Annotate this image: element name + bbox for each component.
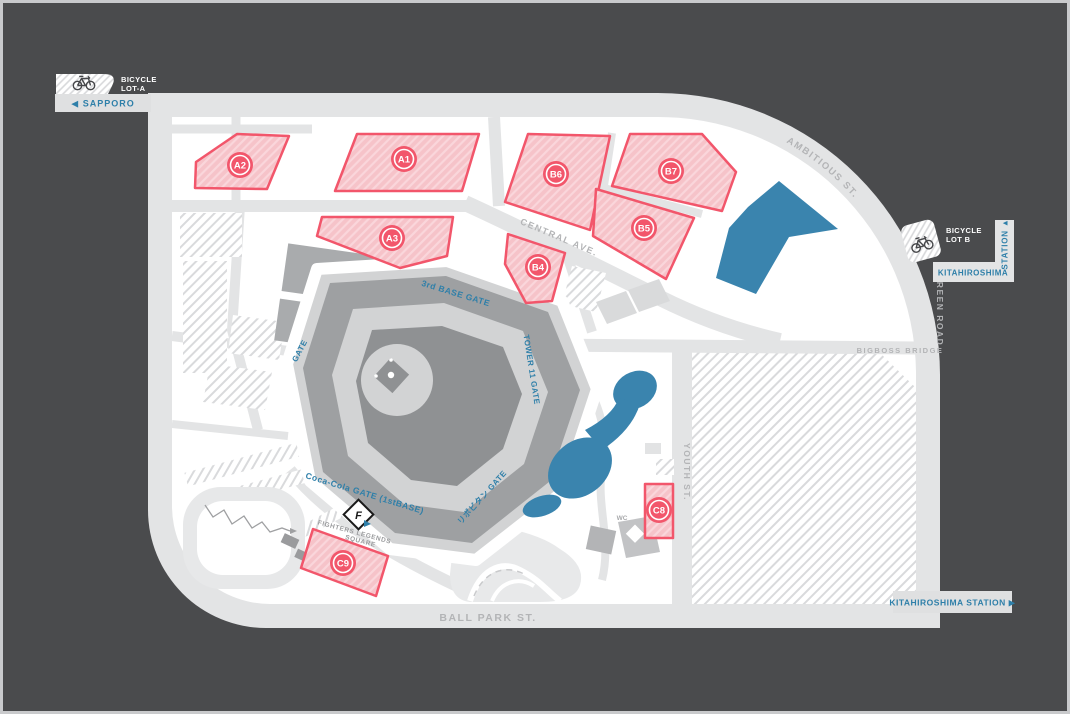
hatched-block [180,213,242,257]
bicycle-lot-a[interactable]: BICYCLE LOT-A [56,74,157,94]
road [494,117,499,206]
parking-lot-c9-badge[interactable]: C9 [330,550,356,576]
parking-lot-b6-badge[interactable]: B6 [543,161,569,187]
building [645,443,661,454]
parking-lot-a3-badge[interactable]: A3 [379,225,405,251]
lot-label: C9 [337,558,349,569]
kitahiroshima-bottom-station-sign[interactable]: KITAHIROSHIMA STATION ▶ [889,591,1015,613]
ballpark-access-map: A2 A1 A3 B6 B7 B5 B4 C8 C9 CENTRAL AVE. [0,0,1070,714]
fighters-logo-letter: F [355,510,362,522]
parking-lot-c8-badge[interactable]: C8 [646,497,672,523]
lot-label: B6 [550,169,562,180]
pitchers-mound [388,372,394,378]
wc-marker: WC [617,515,628,522]
sapporo-sign-label: ◀ SAPPORO [71,99,134,109]
hatched-block [203,364,272,410]
station-sign-horizontal-label: KITAHIROSHIMA [938,269,1008,278]
base-dot [389,358,393,362]
lot-label: A1 [398,154,411,165]
parking-lot-a2-badge[interactable]: A2 [227,152,253,178]
hatched-block [656,459,674,475]
lot-label: A2 [234,160,246,171]
lot-label: B7 [665,166,677,177]
bicycle-lot-a-label-2: LOT-A [121,84,146,93]
lot-label: B5 [638,223,651,234]
bicycle-lot-b-label-1: BICYCLE [946,226,982,235]
bicycle-lot-b-label-2: LOT B [946,235,971,244]
road-label-green-road: GREEN ROAD [935,274,945,347]
parking-lot-b7-badge[interactable]: B7 [658,158,684,184]
bottom-station-label: KITAHIROSHIMA STATION ▶ [889,598,1015,608]
parking-lot-a1-badge[interactable]: A1 [391,146,417,172]
lot-label: B4 [532,262,545,273]
hatched-block [183,261,227,373]
road-label-youth-st: YOUTH ST. [682,443,692,501]
park-inner [197,501,291,575]
parking-lot-b4-badge[interactable]: B4 [525,254,551,280]
development-area-hatched [692,351,916,604]
park-area [183,487,306,589]
station-sign-vertical-label: STATION ▲ [1001,218,1010,269]
base-dot [374,374,378,378]
parking-lot-b5-badge[interactable]: B5 [631,215,657,241]
bicycle-lot-a-label-1: BICYCLE [121,75,157,84]
road-label-ball-park-st: BALL PARK ST. [439,612,536,624]
lot-label: C8 [653,505,665,516]
map-canvas: A2 A1 A3 B6 B7 B5 B4 C8 C9 CENTRAL AVE. [0,0,1070,714]
road-label-bigboss-bridge: BIGBOSS BRIDGE [857,346,944,355]
sapporo-direction-sign[interactable]: ◀ SAPPORO [55,94,151,112]
lot-label: A3 [386,233,398,244]
